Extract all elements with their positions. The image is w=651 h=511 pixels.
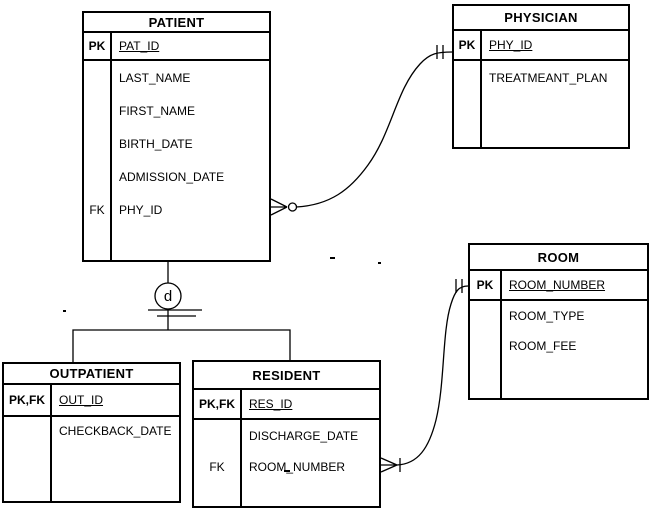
one-and-only-one-icon	[437, 45, 443, 59]
pk-attribute: RES_ID	[242, 397, 292, 411]
stray-mark	[378, 262, 381, 264]
entity-room[interactable]: ROOM PK ROOM_NUMBER ROOM_TYPE ROOM_FEE	[468, 243, 649, 400]
attribute: CHECKBACK_DATE	[52, 424, 171, 438]
stray-mark	[63, 310, 66, 312]
entity-title: PATIENT	[84, 13, 269, 33]
entity-title: OUTPATIENT	[4, 364, 179, 385]
fk-label: FK	[194, 460, 240, 474]
attribute: LAST_NAME	[112, 71, 190, 85]
attribute: ROOM_TYPE	[502, 309, 584, 323]
key-column-divider	[500, 271, 502, 398]
relationship-line	[297, 52, 453, 207]
entity-patient[interactable]: PATIENT PK PAT_ID LAST_NAME FIRST_NAME B…	[82, 11, 271, 262]
attribute: BIRTH_DATE	[112, 137, 193, 151]
relationship-resident-room[interactable]	[381, 279, 468, 472]
entity-physician[interactable]: PHYSICIAN PK PHY_ID TREATMEANT_PLAN	[452, 4, 630, 149]
table-row: ROOM_FEE	[470, 331, 647, 361]
total-specialization-lines	[148, 310, 202, 316]
entity-title: RESIDENT	[194, 362, 379, 390]
table-row: PK,FK RES_ID	[194, 390, 379, 420]
table-row: PK ROOM_NUMBER	[470, 271, 647, 301]
attribute: ROOM_FEE	[502, 339, 576, 353]
attribute: TREATMEANT_PLAN	[482, 71, 607, 85]
attribute: ROOM_NUMBER	[242, 460, 345, 474]
entity-outpatient[interactable]: OUTPATIENT PK,FK OUT_ID CHECKBACK_DATE	[2, 362, 181, 503]
one-and-only-one-icon	[456, 279, 462, 293]
key-column-divider	[480, 31, 482, 147]
attribute: FIRST_NAME	[112, 104, 195, 118]
pk-attribute: ROOM_NUMBER	[502, 278, 605, 292]
table-row: CHECKBACK_DATE	[4, 417, 179, 445]
subtype-branch-line	[73, 330, 290, 362]
one-or-many-icon	[381, 458, 400, 472]
disjoint-label: d	[164, 288, 172, 305]
table-row: FK ROOM_NUMBER	[194, 451, 379, 482]
relationship-patient-physician[interactable]	[271, 45, 452, 215]
pk-fk-label: PK,FK	[194, 397, 240, 411]
table-row: DISCHARGE_DATE	[194, 420, 379, 451]
key-column-divider	[240, 390, 242, 506]
subtype-connector[interactable]: d	[73, 262, 290, 362]
attribute: DISCHARGE_DATE	[242, 429, 358, 443]
pk-label: PK	[470, 278, 500, 292]
stray-mark	[284, 470, 290, 472]
key-column-divider	[50, 385, 52, 501]
entity-resident[interactable]: RESIDENT PK,FK RES_ID DISCHARGE_DATE FK …	[192, 360, 381, 508]
attribute: ADMISSION_DATE	[112, 170, 224, 184]
table-row: ROOM_TYPE	[470, 301, 647, 331]
stray-mark	[330, 257, 335, 259]
zero-or-many-icon	[271, 199, 297, 215]
attribute: PHY_ID	[112, 203, 162, 217]
pk-attribute: PHY_ID	[482, 38, 532, 52]
pk-attribute: OUT_ID	[52, 393, 103, 407]
pk-attribute: PAT_ID	[112, 39, 159, 53]
fk-label: FK	[84, 203, 110, 217]
relationship-line	[397, 286, 468, 465]
er-diagram-canvas: d PATIENT PK PAT_ID LAST_NAME FIRST_NAME…	[0, 0, 651, 511]
pk-label: PK	[454, 38, 480, 52]
pk-fk-label: PK,FK	[4, 393, 50, 407]
pk-label: PK	[84, 39, 110, 53]
table-row: PK,FK OUT_ID	[4, 385, 179, 417]
disjoint-circle	[155, 283, 181, 309]
entity-title: ROOM	[470, 245, 647, 271]
key-column-divider	[110, 33, 112, 260]
entity-title: PHYSICIAN	[454, 6, 628, 31]
